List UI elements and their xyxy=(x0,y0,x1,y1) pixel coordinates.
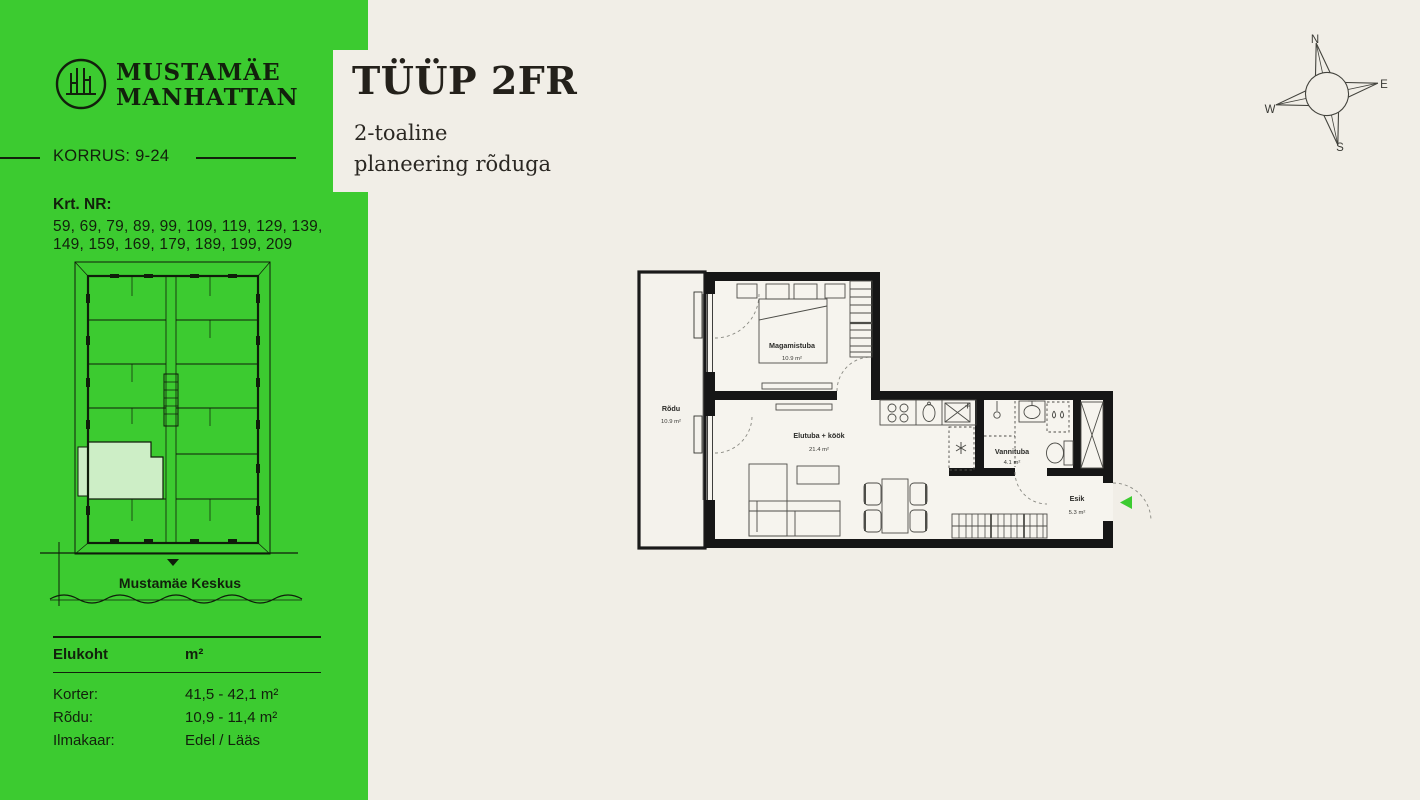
apartment-floor xyxy=(705,272,1113,548)
balcony-door-leaf xyxy=(694,292,702,338)
apartment-numbers: 59, 69, 79, 89, 99, 109, 119, 129, 139, … xyxy=(53,218,323,254)
spec-row-value: 41,5 - 42,1 m² xyxy=(185,683,321,706)
apartment-numbers-line1: 59, 69, 79, 89, 99, 109, 119, 129, 139, xyxy=(53,218,323,236)
spec-row-label: Rõdu: xyxy=(53,706,185,729)
spec-row-label: Ilmakaar: xyxy=(53,729,185,752)
spec-header-col2: m² xyxy=(185,646,321,663)
room-area-magamistuba: 10.9 m² xyxy=(782,356,802,362)
sidebar: MUSTAMÄE MANHATTAN KORRUS: 9-24 Krt. NR:… xyxy=(0,0,368,800)
room-area-rodu: 10.9 m² xyxy=(661,419,681,425)
spec-row-value: 10,9 - 11,4 m² xyxy=(185,706,321,729)
apartment-floorplan: Rõdu 10.9 m² Magamistuba 10.9 m² Elutuba… xyxy=(635,264,1155,558)
spec-row-label: Korter: xyxy=(53,683,185,706)
compass-n-label: N xyxy=(1311,34,1319,46)
compass-s-label: S xyxy=(1336,142,1344,154)
compass-w-label: W xyxy=(1265,104,1276,116)
subtitle-line2: planeering rõduga xyxy=(354,149,551,180)
apartment-numbers-line2: 149, 159, 169, 179, 189, 199, 209 xyxy=(53,236,323,254)
spec-row-korter: Korter: 41,5 - 42,1 m² xyxy=(53,683,321,706)
compass-rose-icon: N E S W xyxy=(1262,32,1392,154)
room-label-elutuba: Elutuba + köök xyxy=(793,431,844,440)
spec-table: Elukoht m² Korter: 41,5 - 42,1 m² Rõdu: … xyxy=(53,636,321,752)
brand-line1: MUSTAMÄE xyxy=(116,60,299,85)
korrus-rule-right xyxy=(196,157,296,159)
korrus-label: KORRUS: 9-24 xyxy=(53,147,169,166)
brand-logo-icon xyxy=(53,56,109,112)
brand-wordmark: MUSTAMÄE MANHATTAN xyxy=(116,60,299,110)
room-label-rodu: Rõdu xyxy=(662,404,680,413)
korrus-rule-left xyxy=(0,157,40,159)
spec-row-rodu: Rõdu: 10,9 - 11,4 m² xyxy=(53,706,321,729)
spec-table-header: Elukoht m² xyxy=(53,636,321,673)
room-area-vannituba: 4.1 m² xyxy=(1004,460,1021,466)
room-area-esik: 5.3 m² xyxy=(1069,510,1086,516)
page-subtitle: 2-toaline planeering rõduga xyxy=(354,118,551,180)
room-label-esik: Esik xyxy=(1070,494,1085,503)
spec-header-col1: Elukoht xyxy=(53,646,185,663)
apartment-numbers-label: Krt. NR: xyxy=(53,196,112,214)
spec-row-ilmakaar: Ilmakaar: Edel / Lääs xyxy=(53,729,321,752)
minimap-unit-highlight xyxy=(88,442,163,499)
room-label-magamistuba: Magamistuba xyxy=(769,341,816,350)
building-floor-minimap: Mustamäe Keskus xyxy=(40,254,320,614)
minimap-unit-balcony xyxy=(78,447,88,496)
compass-e-label: E xyxy=(1380,79,1388,91)
page-title: TÜÜP 2FR xyxy=(352,58,577,103)
entrance-arrow-icon xyxy=(1120,496,1132,509)
room-area-elutuba: 21.4 m² xyxy=(809,447,829,453)
brand-line2: MANHATTAN xyxy=(116,85,299,110)
minimap-caption: Mustamäe Keskus xyxy=(119,575,241,591)
balcony-door-leaf xyxy=(694,416,702,453)
spec-row-value: Edel / Lääs xyxy=(185,729,321,752)
page: MUSTAMÄE MANHATTAN KORRUS: 9-24 Krt. NR:… xyxy=(0,0,1420,800)
location-marker-icon xyxy=(167,559,179,566)
room-label-vannituba: Vannituba xyxy=(995,447,1030,456)
subtitle-line1: 2-toaline xyxy=(354,118,551,149)
